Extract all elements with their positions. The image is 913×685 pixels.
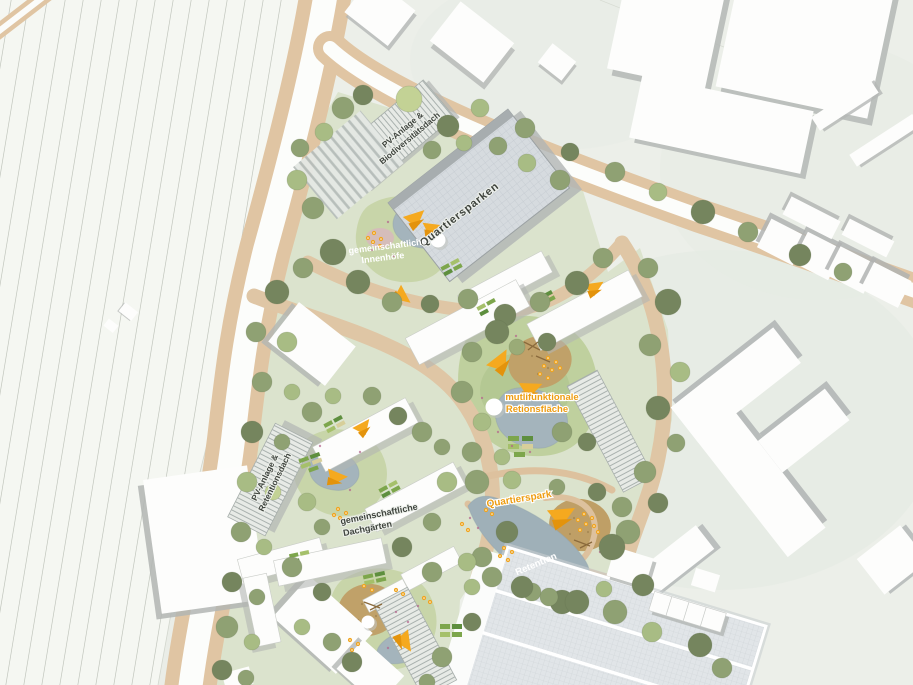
svg-text:Retionsfläche: Retionsfläche [506, 404, 568, 415]
svg-text:mutlifunktionale: mutlifunktionale [505, 392, 578, 403]
label-retentionsflaeche: mutlifunktionale Retionsfläche [505, 392, 578, 415]
site-plan: PV-Anlage & Biodiversitätsdach Quartiers… [0, 0, 913, 685]
